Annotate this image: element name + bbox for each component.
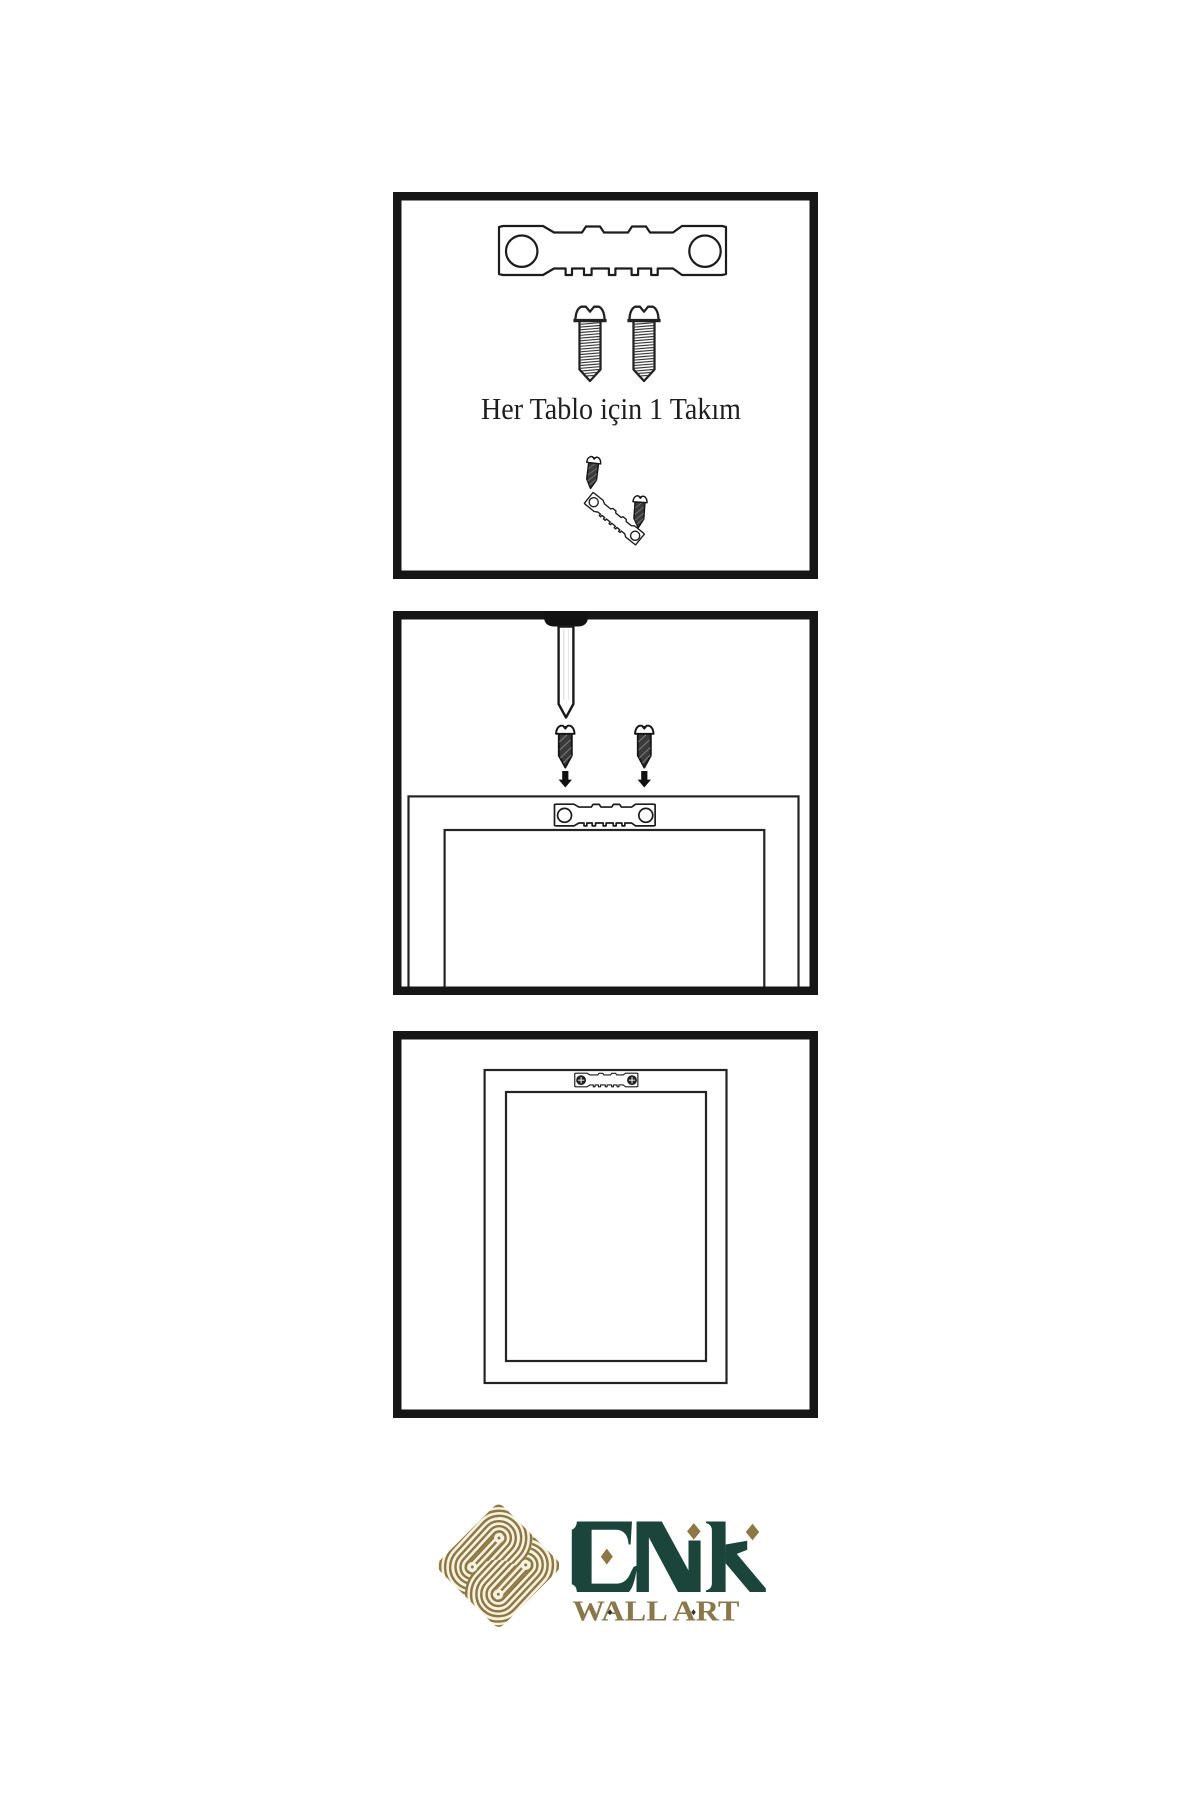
svg-text:Her Tablo için 1 Takım: Her Tablo için 1 Takım bbox=[481, 392, 741, 426]
svg-text:WALL ART: WALL ART bbox=[573, 1597, 740, 1628]
